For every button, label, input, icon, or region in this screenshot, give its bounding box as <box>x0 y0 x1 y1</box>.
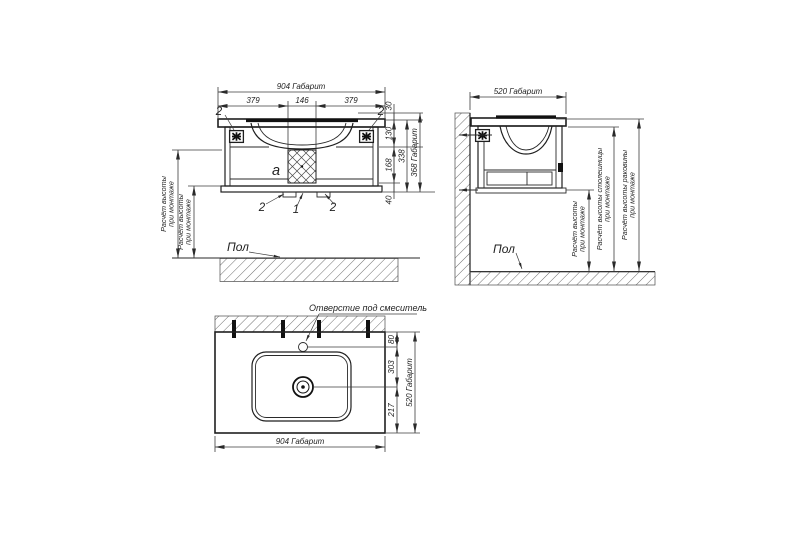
side-countertop-line2: при монтаже <box>603 176 612 222</box>
top-bottom-dim: 904 Габарит <box>215 436 385 452</box>
front-callout-center: 1 <box>293 204 299 216</box>
front-dim-rim-label: 30 <box>385 101 394 110</box>
side-countertop <box>471 118 566 126</box>
side-floor: Пол <box>470 242 655 285</box>
top-dim-overall-depth-label: 520 Габарит <box>405 358 414 407</box>
top-dim-hole-to-drain-label: 303 <box>387 360 396 374</box>
side-cabinet <box>459 126 566 193</box>
side-view: 520 Габарит Расчёт высоты <box>455 87 655 285</box>
front-siphon-area: a <box>272 150 316 183</box>
front-floor: Пол <box>172 240 420 282</box>
front-dim-overall-height-label: 368 Габарит <box>410 128 419 177</box>
drawing-canvas: 904 Габарит 379 146 379 <box>0 0 800 536</box>
front-siphon-center-dot <box>301 165 303 167</box>
side-floor-label: Пол <box>493 242 515 256</box>
front-dim-center-label: 146 <box>295 96 309 105</box>
front-dim-left-label: 379 <box>246 96 260 105</box>
side-mount-line2: при монтаже <box>578 206 587 252</box>
front-callout-bracket-left: 2 <box>215 106 223 118</box>
front-dim-top-section-label: 130 <box>385 126 394 140</box>
technical-drawing-page: 904 Габарит 379 146 379 <box>0 0 800 536</box>
front-callout-tab-right: 2 <box>329 202 337 214</box>
front-bottom-callouts: 2 1 2 <box>258 193 337 216</box>
front-floor-label: Пол <box>227 240 249 254</box>
side-right-dims: Расчёт высоты при монтаже Расчёт высоты … <box>556 119 644 271</box>
front-cabinet-plinth <box>221 186 382 192</box>
top-view: Отверстие под смеситель 80 303 217 520 Г… <box>215 303 427 452</box>
front-dim-overall-width-label: 904 Габарит <box>277 82 326 91</box>
top-dim-drain-to-front-label: 217 <box>387 403 396 418</box>
top-drain <box>293 377 313 397</box>
front-dim-mid-section-label: 168 <box>385 158 394 172</box>
front-dim-body-label: 338 <box>398 149 407 163</box>
front-section-label: a <box>272 163 280 179</box>
front-floor-hatch <box>220 259 398 282</box>
front-brackets: 2 2 <box>215 106 385 142</box>
side-handle <box>558 163 563 172</box>
side-drawer <box>487 172 552 185</box>
top-dim-hole-offset-label: 80 <box>387 335 396 344</box>
front-left-dims: Расчёт высоты при монтаже Расчёт высоты … <box>159 150 222 258</box>
side-dim-overall-depth-label: 520 Габарит <box>494 87 543 96</box>
front-view: 904 Габарит 379 146 379 <box>159 82 435 282</box>
front-mount-a-line2: при монтаже <box>167 181 176 227</box>
front-callout-tab-left: 2 <box>258 202 266 214</box>
side-dim-overall-depth: 520 Габарит <box>470 87 566 114</box>
front-dim-right-label: 379 <box>344 96 358 105</box>
top-wall-hatch <box>215 316 385 332</box>
top-dim-overall-width-label: 904 Габарит <box>276 437 325 446</box>
side-basin-line2: при монтаже <box>628 172 637 218</box>
side-cabinet-plinth <box>476 188 566 193</box>
front-mount-b-line2: при монтаже <box>184 199 193 245</box>
side-bracket-icon <box>476 130 490 142</box>
side-wall-hatch <box>455 113 470 285</box>
front-bracket-right-icon <box>360 131 374 143</box>
front-mount-tab-left <box>283 192 296 197</box>
front-dim-foot-label: 40 <box>385 195 394 204</box>
front-mount-tab-right <box>317 192 330 197</box>
front-right-dims: 30 130 168 40 338 368 Габарит <box>358 101 435 204</box>
top-faucet-note-label: Отверстие под смеситель <box>309 303 427 313</box>
top-faucet-hole <box>299 343 308 352</box>
side-floor-hatch <box>470 272 655 285</box>
front-bracket-left-icon <box>230 131 244 143</box>
